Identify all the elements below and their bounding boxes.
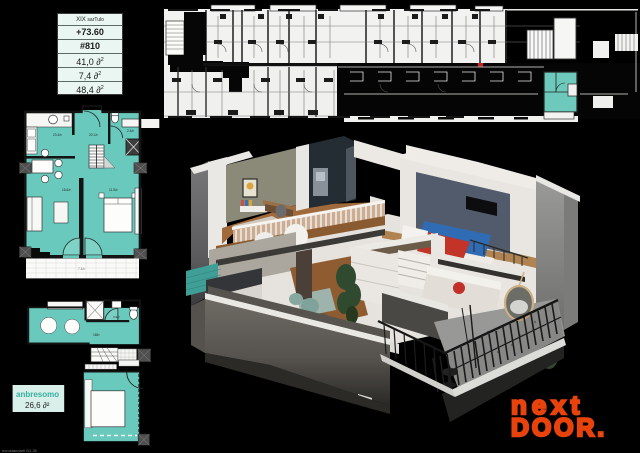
svg-text:26,6 ∂²: 26,6 ∂² — [25, 401, 50, 410]
svg-text:18∂²: 18∂² — [93, 333, 100, 337]
svg-text:anbresomo: anbresomo — [16, 390, 59, 399]
svg-text:16.6∂²: 16.6∂² — [62, 188, 71, 192]
svg-text:11.5∂²: 11.5∂² — [109, 188, 118, 192]
svg-text:2.4∂²: 2.4∂² — [127, 129, 134, 133]
svg-text:7.4∂²: 7.4∂² — [78, 267, 85, 271]
svg-text:20.1∂²: 20.1∂² — [89, 133, 98, 137]
svg-text:3.9∂²: 3.9∂² — [113, 315, 120, 319]
svg-text:23.4∂²: 23.4∂² — [53, 133, 62, 137]
